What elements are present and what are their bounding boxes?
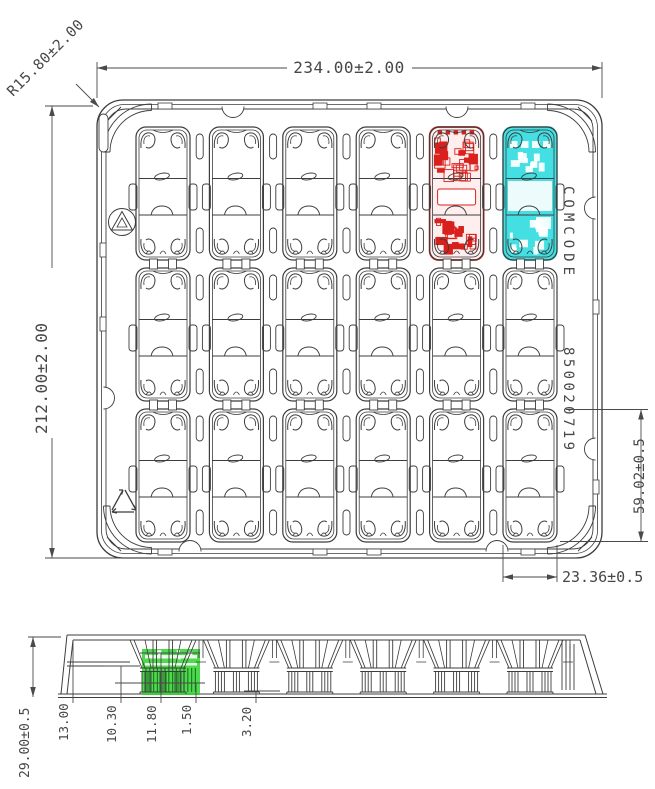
tray-pocket <box>496 268 564 401</box>
column-slot <box>270 228 277 253</box>
row-bridge <box>150 400 158 410</box>
row-bridge <box>242 400 250 410</box>
tray-pocket <box>129 268 197 401</box>
side-comb <box>350 640 426 694</box>
cyan-device <box>503 127 557 260</box>
tray-pocket <box>496 409 564 542</box>
row-bridge <box>462 400 470 410</box>
tray-technical-drawing: COMCODE 850020719 234.00±2.00 212.00±2.0… <box>0 0 655 789</box>
top-view-dimensions: 234.00±2.00 212.00±2.00 R15.80±2.00 59.0… <box>5 17 648 586</box>
row-bridge <box>443 259 451 269</box>
row-bridge <box>296 259 304 269</box>
row-bridge <box>296 400 304 410</box>
row-bridge <box>223 400 231 410</box>
component-pattern-rect <box>453 243 459 248</box>
column-slot <box>270 416 277 441</box>
row-bridge <box>536 400 544 410</box>
component-pattern-rect <box>469 154 478 164</box>
tray-pocket <box>202 268 270 401</box>
recycle-icon <box>112 490 136 513</box>
column-slot <box>416 228 423 253</box>
row-bridge <box>517 259 525 269</box>
tray-pocket <box>423 268 491 401</box>
column-slot <box>196 134 203 159</box>
column-slot <box>196 228 203 253</box>
component-pattern-rect <box>468 237 472 247</box>
dim-overall-height: 212.00±2.00 <box>32 323 51 434</box>
row-bridge <box>315 400 323 410</box>
component-pattern-rect <box>438 169 445 172</box>
column-slot <box>490 510 497 535</box>
row-bridge <box>517 400 525 410</box>
row-bridge <box>223 259 231 269</box>
tray-pocket <box>129 127 197 260</box>
dim-side-h13: 13.00 <box>56 703 71 741</box>
column-slot <box>490 134 497 159</box>
component-pattern-rect <box>530 163 537 167</box>
row-bridge <box>462 259 470 269</box>
row-bridge <box>150 259 158 269</box>
row-bridge <box>169 259 177 269</box>
side-view <box>58 635 607 698</box>
side-comb <box>277 640 353 694</box>
column-slot <box>343 510 350 535</box>
side-comb <box>203 640 279 694</box>
tray-pocket <box>202 127 270 260</box>
dim-pocket-height: 59.02±0.5 <box>632 438 648 514</box>
comcode-label: COMCODE <box>560 186 576 280</box>
top-view: COMCODE 850020719 <box>97 100 602 558</box>
column-slot <box>270 134 277 159</box>
column-slot <box>416 510 423 535</box>
column-slot <box>196 416 203 441</box>
component-pattern-rect <box>519 240 528 248</box>
column-slot <box>270 510 277 535</box>
column-slot <box>490 228 497 253</box>
row-bridge <box>536 259 544 269</box>
dim-side-h1030: 10.30 <box>104 705 119 743</box>
comcode-number: 850020719 <box>560 347 576 453</box>
component-pattern-rect <box>539 163 545 172</box>
column-slot <box>343 275 350 300</box>
dim-side-h1180: 11.80 <box>144 705 159 743</box>
row-bridge <box>315 259 323 269</box>
column-slot <box>343 228 350 253</box>
component-pattern-rect <box>511 160 520 167</box>
column-slot <box>416 416 423 441</box>
component-pattern-rect <box>530 220 540 228</box>
drawing-page: COMCODE 850020719 234.00±2.00 212.00±2.0… <box>0 0 655 789</box>
column-slot <box>490 369 497 394</box>
dim-side-overall-height: 29.00±0.5 <box>18 708 33 778</box>
row-bridge <box>389 400 397 410</box>
row-bridge <box>370 259 378 269</box>
column-slot <box>270 275 277 300</box>
dim-side-h320: 3.20 <box>239 707 254 737</box>
component-pattern-rect <box>510 233 513 239</box>
row-bridge <box>443 400 451 410</box>
red-device <box>430 127 484 260</box>
component-pattern-rect <box>456 229 462 234</box>
tray-pocket <box>423 409 491 542</box>
component-pattern-rect <box>440 152 448 160</box>
row-bridge <box>169 400 177 410</box>
tray-pocket <box>349 409 417 542</box>
column-slot <box>196 275 203 300</box>
component-pattern-rect <box>443 222 454 234</box>
pocket-grid <box>129 127 564 542</box>
tray-pocket <box>276 127 344 260</box>
side-profile <box>58 635 607 698</box>
component-pattern-rect <box>534 154 540 162</box>
tray-pocket <box>276 268 344 401</box>
component-pattern-rect <box>539 228 548 237</box>
tray-pocket <box>276 409 344 542</box>
tray-pocket <box>202 409 270 542</box>
component-pattern-rect <box>459 151 465 156</box>
column-slot <box>343 369 350 394</box>
tray-pocket <box>349 127 417 260</box>
dim-side-h150: 1.50 <box>179 705 194 735</box>
column-slot <box>416 275 423 300</box>
component-pattern-rect <box>519 153 527 163</box>
column-slot <box>490 275 497 300</box>
tray-pocket <box>349 268 417 401</box>
column-slot <box>343 416 350 441</box>
column-slot <box>196 369 203 394</box>
dim-corner-radius: R15.80±2.00 <box>5 17 88 100</box>
row-bridge <box>242 259 250 269</box>
component-pattern-rect <box>526 166 533 172</box>
column-slot <box>343 134 350 159</box>
dim-overall-width: 234.00±2.00 <box>293 58 404 77</box>
column-slot <box>196 510 203 535</box>
molded-triangle-icon <box>109 209 136 236</box>
tray-pocket <box>129 409 197 542</box>
column-slot <box>416 134 423 159</box>
column-slot <box>270 369 277 394</box>
row-bridge <box>389 259 397 269</box>
side-comb <box>424 640 500 694</box>
dim-pocket-width: 23.36±0.5 <box>562 568 643 586</box>
row-bridge <box>370 400 378 410</box>
column-slot <box>490 416 497 441</box>
column-slot <box>416 369 423 394</box>
